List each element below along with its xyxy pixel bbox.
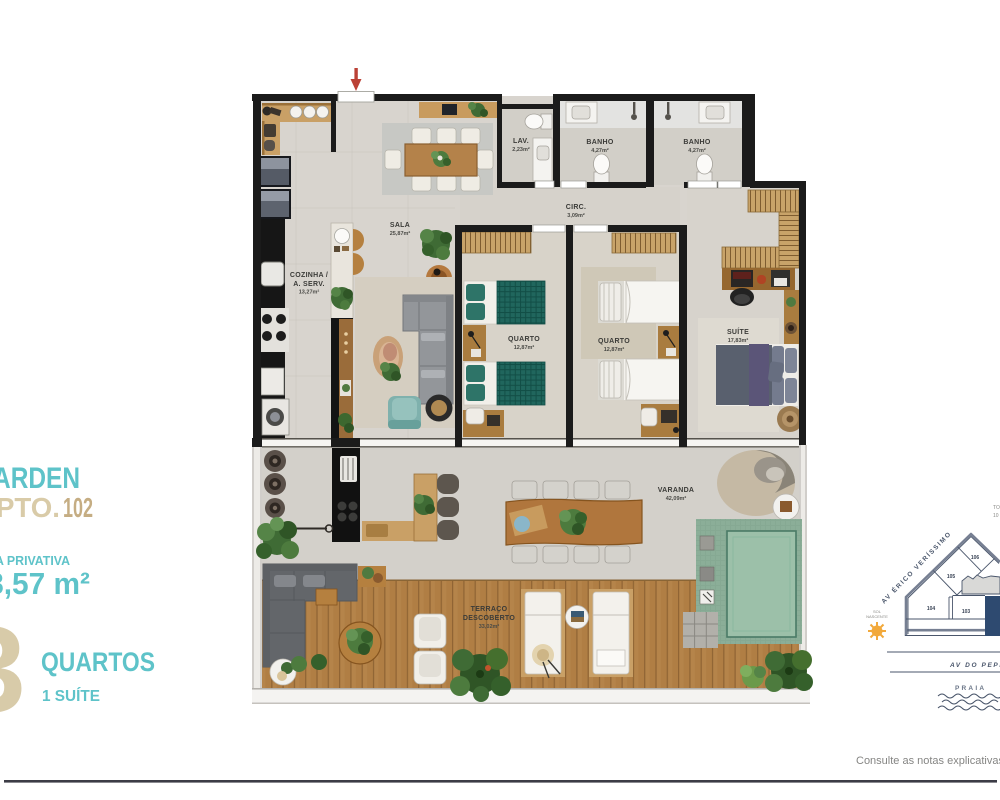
svg-text:DESCOBERTO: DESCOBERTO xyxy=(463,615,516,622)
svg-text:BANHO: BANHO xyxy=(586,139,613,146)
svg-text:4,27m²: 4,27m² xyxy=(688,147,706,154)
svg-text:105: 105 xyxy=(947,574,956,580)
svg-text:QUARTO: QUARTO xyxy=(508,336,540,343)
svg-text:VARANDA: VARANDA xyxy=(658,487,695,494)
svg-text:PRAIA: PRAIA xyxy=(955,685,986,692)
svg-text:10: 10 xyxy=(993,513,999,519)
svg-text:BANHO: BANHO xyxy=(683,139,710,146)
svg-text:TERRAÇO: TERRAÇO xyxy=(471,606,508,613)
svg-text:COZINHA /: COZINHA / xyxy=(290,272,328,279)
svg-text:GARDEN: GARDEN xyxy=(0,462,80,495)
svg-text:3: 3 xyxy=(0,601,26,737)
svg-text:A. SERV.: A. SERV. xyxy=(293,281,325,288)
svg-text:42,09m²: 42,09m² xyxy=(666,495,687,502)
svg-text:QUARTO: QUARTO xyxy=(598,338,630,345)
svg-text:17,83m²: 17,83m² xyxy=(728,337,749,344)
svg-text:QUARTOS: QUARTOS xyxy=(41,647,155,677)
svg-text:104: 104 xyxy=(927,606,936,612)
svg-text:4,27m²: 4,27m² xyxy=(591,147,609,154)
svg-text:3,09m²: 3,09m² xyxy=(567,212,585,219)
svg-text:13,27m²: 13,27m² xyxy=(299,289,320,296)
svg-text:AV DO PEPÊ: AV DO PEPÊ xyxy=(949,660,1000,669)
svg-text:103: 103 xyxy=(962,609,971,615)
svg-text:TO: TO xyxy=(993,505,1000,511)
svg-text:SALA: SALA xyxy=(390,222,410,229)
svg-text:12,87m²: 12,87m² xyxy=(514,344,535,351)
svg-text:Consulte as notas explicativas: Consulte as notas explicativas xyxy=(856,755,1000,767)
svg-text:APTO.: APTO. xyxy=(0,492,60,523)
svg-text:CIRC.: CIRC. xyxy=(566,204,587,211)
svg-text:NASCENTE: NASCENTE xyxy=(866,614,888,619)
svg-text:33,02m²: 33,02m² xyxy=(479,623,500,630)
svg-text:SUÍTE: SUÍTE xyxy=(727,327,749,336)
svg-text:102: 102 xyxy=(63,492,93,523)
svg-text:1 SUÍTE: 1 SUÍTE xyxy=(42,686,100,705)
svg-text:25,87m²: 25,87m² xyxy=(390,230,411,237)
svg-text:2,23m²: 2,23m² xyxy=(512,146,530,153)
svg-text:106: 106 xyxy=(971,555,980,561)
svg-text:238,57 m²: 238,57 m² xyxy=(0,566,90,601)
svg-text:12,87m²: 12,87m² xyxy=(604,346,625,353)
svg-text:LAV.: LAV. xyxy=(513,138,529,145)
